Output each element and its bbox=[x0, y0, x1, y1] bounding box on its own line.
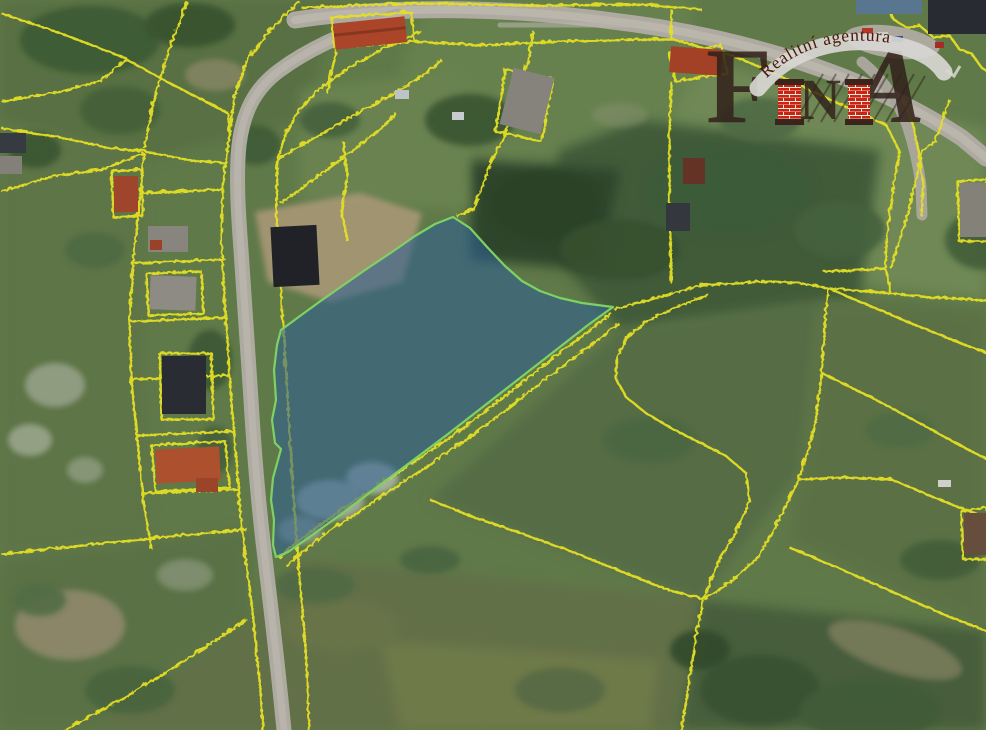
map-canvas: F N A Realitní agentura bbox=[0, 0, 986, 730]
logo-letter-n: N bbox=[799, 67, 841, 132]
brick-pillar-icon bbox=[775, 79, 804, 125]
fina-logo: F N A Realitní agentura bbox=[706, 25, 960, 146]
brick-pillar-icon bbox=[845, 79, 873, 125]
aerial-map: F N A Realitní agentura bbox=[0, 0, 986, 730]
